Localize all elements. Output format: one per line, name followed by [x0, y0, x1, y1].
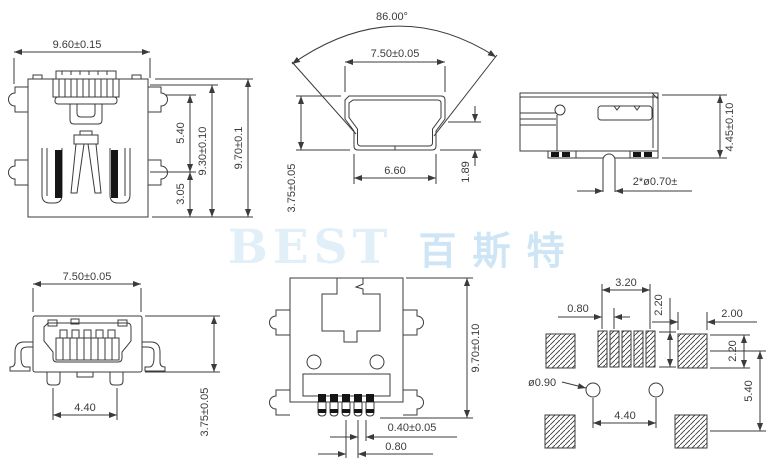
dim-bottom-pin-width: 0.40±0.05	[388, 422, 437, 434]
footprint-view: 3.20 0.80 2.20 2.00 2.20 5.40 ø0.90 4.40	[528, 277, 766, 448]
angle-dimension	[292, 26, 497, 136]
dim-fp-row-offset: 5.40	[743, 380, 755, 401]
dim-fp-side-pad-height: 2.20	[727, 340, 739, 361]
footprint-hole	[586, 383, 600, 397]
dim-rear-contact-depth: 3.05	[175, 183, 187, 204]
dim-front-leg-span: 4.40	[74, 402, 95, 414]
dim-fp-hole-span: 4.40	[614, 410, 635, 422]
rear-dimensions	[14, 52, 253, 217]
dim-side-pegs: 2*ø0.70±	[633, 176, 678, 188]
bottom-pins	[318, 394, 374, 416]
dim-rear-width: 9.60±0.15	[53, 39, 102, 51]
dim-fp-pad-pitch: 0.80	[567, 303, 588, 315]
dim-fp-pad-height: 2.20	[653, 294, 665, 315]
side-view: 4.45±0.10 2*ø0.70±	[520, 93, 736, 192]
dim-front-width: 7.50±0.05	[63, 271, 112, 283]
dim-front-height: 3.75±0.05	[199, 388, 211, 437]
dim-side-height: 4.45±0.10	[724, 103, 736, 152]
dim-rear-overall-height: 9.70±0.1	[233, 127, 245, 170]
dim-plug-top-width: 7.50±0.05	[371, 48, 420, 60]
dim-bottom-pin-pitch: 0.80	[385, 441, 406, 453]
front-dimensions	[33, 284, 220, 420]
front-view: 7.50±0.05 4.40 3.75±0.05	[10, 271, 220, 436]
dim-fp-hole-dia: ø0.90	[528, 377, 556, 389]
dim-rear-shell-height: 9.30±0.10	[197, 127, 209, 176]
dim-plug-height: 3.75±0.05	[286, 164, 298, 213]
footprint-pads	[545, 331, 707, 448]
rear-view: 9.60±0.15 5.40 3.05 9.30±0.10 9.70±0.1	[9, 39, 254, 217]
mini-usb-connector-drawing: BEST 百斯特	[0, 0, 771, 465]
dim-bottom-height: 9.70±0.10	[470, 324, 482, 373]
dim-fp-pad-span: 3.20	[615, 277, 636, 289]
dim-plug-inner-height: 1.89	[460, 161, 472, 182]
dim-fp-side-pad-width: 2.00	[721, 308, 742, 320]
drawing-canvas: 9.60±0.15 5.40 3.05 9.30±0.10 9.70±0.1	[0, 0, 771, 465]
dim-rear-latch-height: 5.40	[175, 122, 187, 143]
plug-profile-view: 86.00° 7.50±0.05 6.60 1.89 3.75±0.05	[286, 11, 497, 212]
footprint-hole	[649, 383, 663, 397]
bottom-view: 9.70±0.10 0.40±0.05 0.80	[270, 278, 483, 458]
dim-plug-bottom-width: 6.60	[384, 165, 405, 177]
dim-plug-angle: 86.00°	[376, 11, 408, 23]
